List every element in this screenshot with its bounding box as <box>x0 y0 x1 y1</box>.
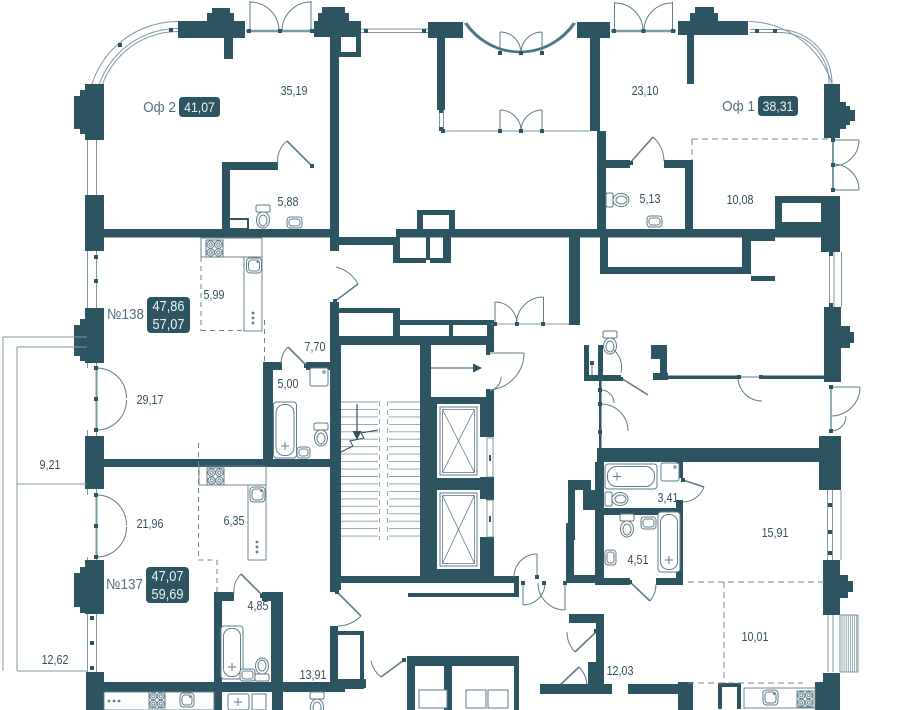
svg-text:10,08: 10,08 <box>727 193 754 207</box>
svg-text:Оф 2: Оф 2 <box>143 99 176 116</box>
svg-text:5,99: 5,99 <box>204 288 225 302</box>
svg-text:5,00: 5,00 <box>278 377 299 391</box>
svg-text:38,31: 38,31 <box>763 98 794 114</box>
svg-text:10,01: 10,01 <box>742 630 769 644</box>
svg-text:41,07: 41,07 <box>184 99 215 115</box>
svg-text:47,86: 47,86 <box>153 298 185 314</box>
svg-text:13,91: 13,91 <box>300 668 327 682</box>
svg-text:Оф 1: Оф 1 <box>722 98 755 115</box>
svg-text:12,62: 12,62 <box>42 653 69 667</box>
svg-text:47,07: 47,07 <box>152 568 184 584</box>
svg-text:3,41: 3,41 <box>658 491 679 505</box>
svg-text:6,35: 6,35 <box>224 514 245 528</box>
svg-text:№138: №138 <box>107 306 144 323</box>
svg-text:12,03: 12,03 <box>607 664 634 678</box>
svg-text:23,10: 23,10 <box>632 84 659 98</box>
svg-text:21,96: 21,96 <box>137 517 164 531</box>
svg-text:35,19: 35,19 <box>281 84 308 98</box>
svg-text:59,69: 59,69 <box>152 586 184 602</box>
svg-text:5,13: 5,13 <box>640 192 661 206</box>
svg-text:4,85: 4,85 <box>248 599 269 613</box>
svg-text:5,88: 5,88 <box>278 195 299 209</box>
svg-text:9,21: 9,21 <box>40 458 61 472</box>
svg-text:4,51: 4,51 <box>628 553 649 567</box>
svg-text:29,17: 29,17 <box>137 393 164 407</box>
svg-text:№137: №137 <box>106 576 143 593</box>
svg-text:15,91: 15,91 <box>762 526 789 540</box>
svg-text:7,70: 7,70 <box>305 340 326 354</box>
svg-text:57,07: 57,07 <box>153 316 185 332</box>
